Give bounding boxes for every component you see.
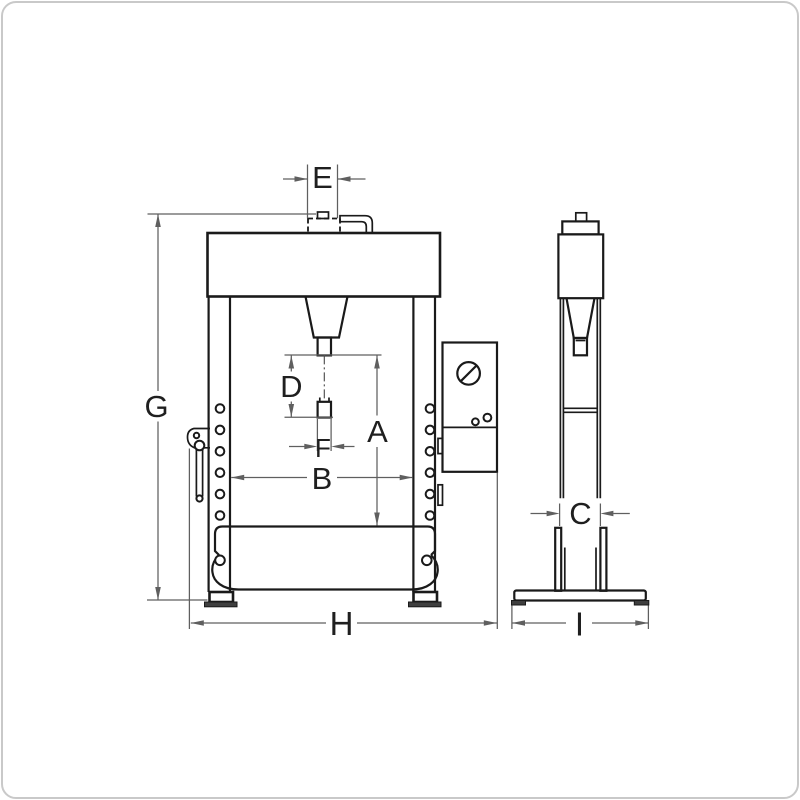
dim-label-I: I bbox=[575, 606, 584, 643]
work-table bbox=[212, 527, 437, 590]
side-view bbox=[512, 213, 649, 605]
left-foot-pad bbox=[205, 602, 238, 607]
dim-I: I bbox=[512, 606, 649, 643]
right-foot bbox=[414, 592, 438, 602]
dim-label-H: H bbox=[330, 605, 354, 642]
dim-F: F bbox=[289, 419, 355, 463]
handle-socket-inner bbox=[340, 222, 366, 233]
ram-taper bbox=[306, 297, 348, 338]
dim-label-C: C bbox=[569, 496, 591, 531]
dim-E: E bbox=[283, 160, 366, 218]
pump-handle-end bbox=[196, 495, 202, 501]
dim-B: B bbox=[231, 461, 413, 496]
pump-lever bbox=[188, 429, 211, 502]
dim-label-A: A bbox=[367, 414, 388, 449]
control-box-hole-small bbox=[472, 418, 479, 425]
pump-nub bbox=[318, 212, 329, 219]
side-pump-nub bbox=[576, 213, 587, 222]
control-box bbox=[438, 343, 497, 506]
side-base-pad-left bbox=[512, 601, 526, 606]
press-dimension-diagram: E G D A F bbox=[0, 0, 800, 800]
side-cylinder-cap bbox=[562, 221, 598, 234]
pump-handle-rod bbox=[196, 449, 202, 497]
dim-label-F: F bbox=[315, 433, 331, 463]
side-left-leg bbox=[555, 528, 561, 591]
side-base-pad-right bbox=[634, 601, 649, 606]
left-foot bbox=[210, 592, 234, 602]
side-right-leg bbox=[600, 528, 606, 591]
front-view bbox=[188, 212, 498, 607]
side-table-edge bbox=[563, 408, 597, 412]
valve-knob-slot bbox=[461, 366, 477, 382]
pump-bracket-hole bbox=[194, 433, 199, 438]
control-box-tab-lower bbox=[438, 485, 443, 505]
right-column bbox=[413, 297, 435, 593]
dim-A: A bbox=[367, 356, 388, 526]
image-frame bbox=[2, 2, 798, 798]
head-beam bbox=[208, 233, 441, 297]
nose-piece bbox=[318, 402, 331, 418]
table-pin-left bbox=[215, 556, 225, 566]
left-column bbox=[209, 297, 230, 593]
dim-label-B: B bbox=[312, 461, 333, 496]
side-ram-taper bbox=[567, 298, 595, 338]
table-pin-right bbox=[422, 556, 432, 566]
dim-label-G: G bbox=[144, 389, 168, 424]
side-cylinder-body bbox=[558, 234, 603, 298]
handle-socket-outer bbox=[340, 216, 372, 233]
side-column bbox=[560, 298, 600, 498]
control-box-tab-upper bbox=[438, 438, 443, 453]
right-foot-pad bbox=[409, 602, 442, 607]
control-box-hole-large bbox=[484, 414, 492, 422]
dim-label-D: D bbox=[280, 369, 302, 404]
ram-piston bbox=[318, 338, 331, 356]
side-base-plate bbox=[514, 591, 646, 601]
dim-label-E: E bbox=[312, 160, 333, 195]
pump-port-hidden-outline bbox=[308, 219, 340, 234]
dim-C: C bbox=[531, 496, 630, 531]
